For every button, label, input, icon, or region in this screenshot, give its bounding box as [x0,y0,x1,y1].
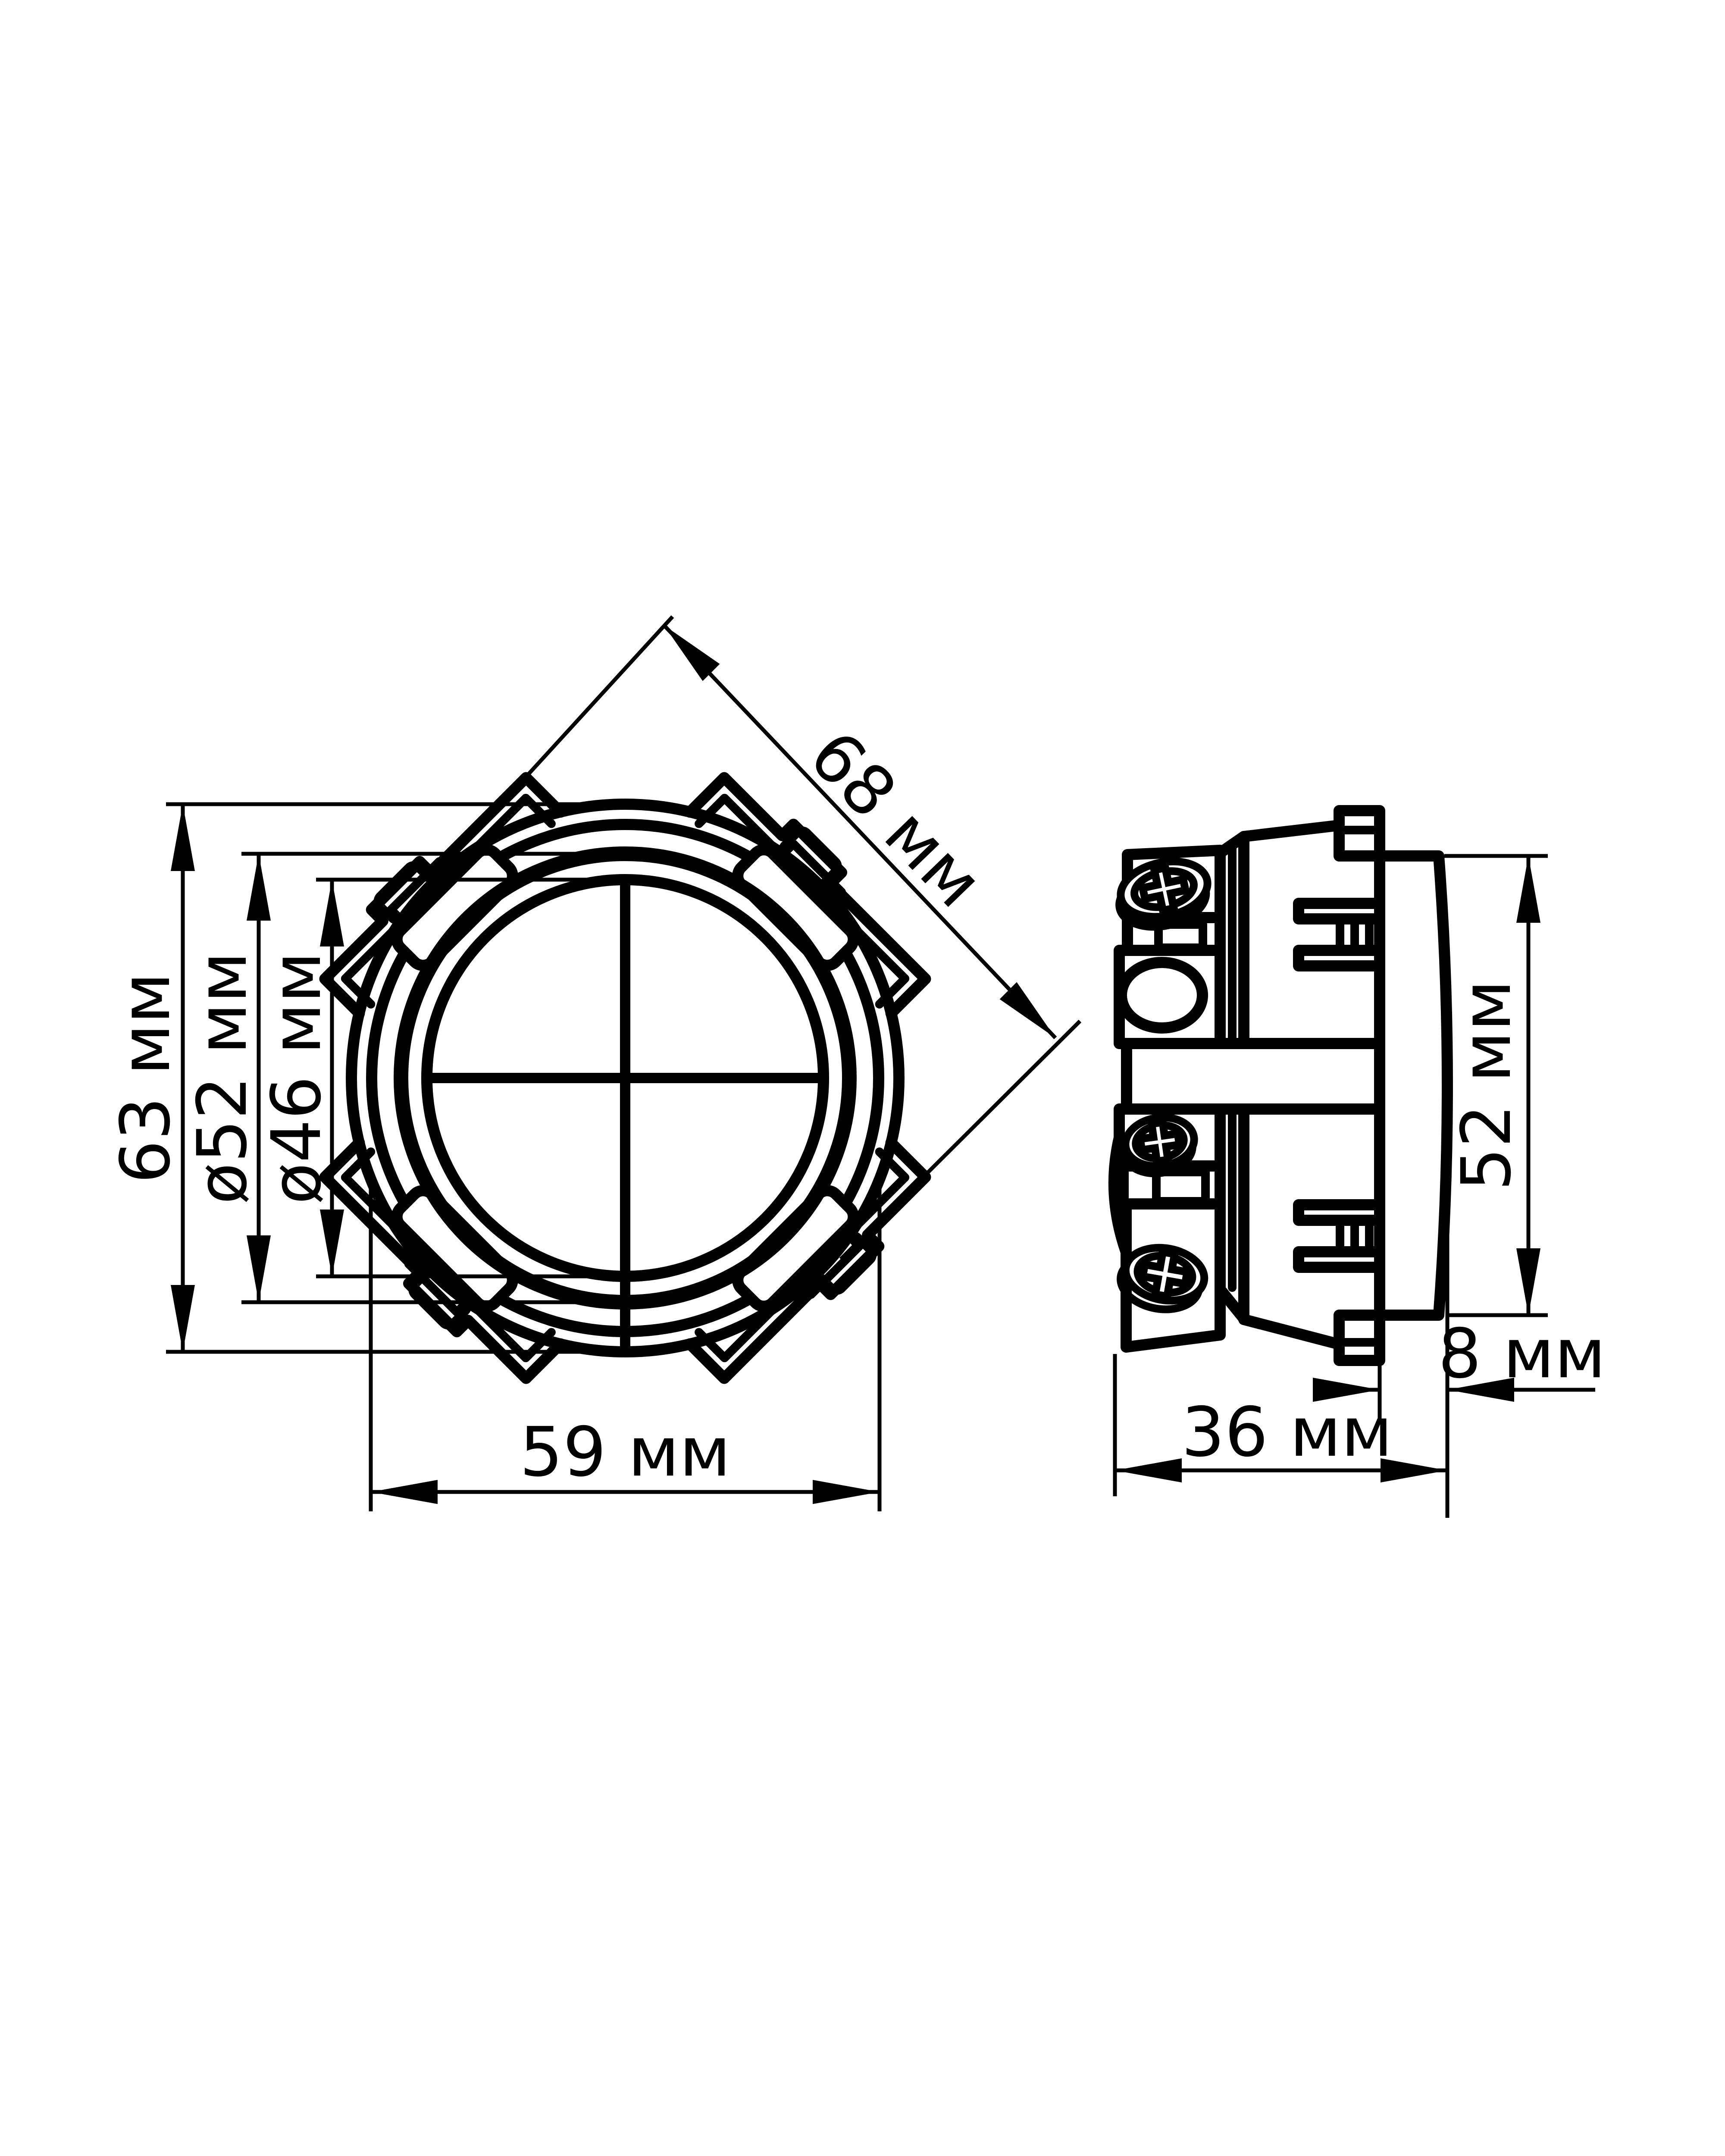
dim-label-8mm: 8 мм [1438,1314,1606,1394]
dimension-arrowhead-icon [1381,1458,1447,1482]
front-view [311,764,939,1392]
dimension-arrowhead-icon [171,1285,195,1352]
dimension-arrowhead-icon [320,1210,344,1276]
upper-terminal-group [1112,850,1220,1044]
dimension-arrowhead-icon [320,880,344,946]
dim-label-59mm: 59 мм [520,1413,731,1492]
tab-outline [1339,1315,1380,1360]
bezel-profile [1380,856,1447,1315]
drawing-page: 63 мм ø52 мм ø46 мм 59 мм 68 [0,0,1725,2156]
dim-label-63mm: 63 мм [106,972,185,1184]
dim-label-52mm-height: 52 мм [1447,980,1526,1191]
dim-side-height-52mm: 52 мм [1444,856,1548,1315]
top-mounting-tab [1339,811,1380,856]
dimension-arrowhead-icon [1516,856,1540,923]
dimension-arrowhead-icon [813,1480,880,1504]
dim-label-52mm-diameter: ø52 мм [183,952,262,1204]
dimension-arrowhead-icon [1516,1248,1540,1315]
dim-label-36mm: 36 мм [1181,1393,1393,1472]
dimension-arrowhead-icon [1000,982,1064,1047]
dimension-arrowhead-icon [371,1480,438,1504]
technical-drawing: 63 мм ø52 мм ø46 мм 59 мм 68 [0,0,1725,2156]
bottom-mounting-tab [1339,1315,1380,1360]
dimension-arrowhead-icon [247,1235,271,1302]
dimension-arrowhead-icon [1115,1458,1182,1482]
side-view [1112,811,1447,1360]
dim-label-46mm-diameter: ø46 мм [257,952,336,1204]
dimension-arrowhead-icon [655,617,720,681]
central-band [1127,1044,1380,1109]
dimension-arrowhead-icon [171,804,195,871]
lower-terminal-group [1114,1109,1220,1347]
dimension-arrowhead-icon [247,854,271,921]
